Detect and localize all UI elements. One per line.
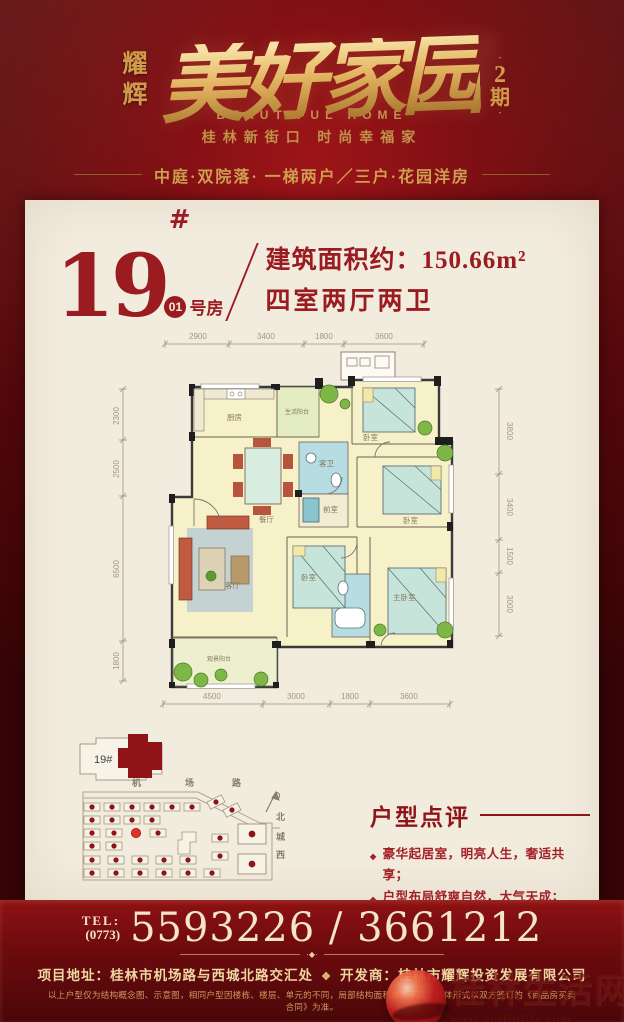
- tagline: 中庭·双院落· 一梯两户／三户·花园洋房: [0, 163, 624, 187]
- inset-label: 19#: [94, 754, 113, 766]
- phase-number: 2: [494, 63, 506, 87]
- dim-top-1: 2900: [189, 332, 207, 341]
- road-label-right-2: 城: [276, 831, 285, 842]
- dim-left-3: 6500: [112, 560, 121, 578]
- dim-right-2: 3400: [505, 498, 514, 516]
- room-bedroom-right: 卧室: [403, 515, 418, 525]
- phase-label: 期: [490, 87, 510, 109]
- road-label-top-2: 场: [185, 777, 194, 788]
- road-label-right-3: 西: [276, 850, 285, 860]
- room-guest-bath: 客卫: [319, 458, 334, 468]
- site-map: 19# 机 场 路: [70, 728, 370, 908]
- map-inset: 19#: [80, 734, 162, 780]
- watermark-site-url: www.guilinlife.com: [450, 1012, 624, 1022]
- road-label-top-1: 机: [132, 777, 141, 788]
- guest-bath-zone: [299, 442, 348, 494]
- poster-page: 耀辉 美好家园 · 2 期 · BEAUTIFUL HOME 桂林新街口 时尚幸…: [0, 0, 624, 1022]
- dim-right-3: 1500: [505, 547, 514, 565]
- room-service-balcony: 生活阳台: [285, 408, 309, 416]
- room-bedroom-mid: 卧室: [301, 572, 316, 582]
- map-buildings: [84, 795, 266, 877]
- dim-bottom-1: 4500: [203, 692, 221, 701]
- floor-plan: 厨房 生活阳台 卧室 客卫 前室 餐厅 卧室 客厅 卧室 主卧室 观景阳台: [95, 330, 531, 730]
- address-value: 桂林市机场路与西城北路交汇处: [110, 968, 313, 983]
- review-title-row: 户型点评: [370, 798, 590, 832]
- compass-icon: [266, 792, 280, 812]
- dim-bottom-4: 3600: [400, 692, 418, 701]
- review-point-text: 豪华起居室，明亮人生，奢适共享；: [383, 844, 590, 887]
- room-dining: 餐厅: [259, 515, 274, 524]
- room-view-balcony: 观景阳台: [207, 655, 231, 663]
- telephone-row: TEL: (0773) 5593226 / 3661212: [0, 908, 624, 948]
- address-label: 项目地址：: [38, 968, 111, 983]
- room-badge: 01: [164, 296, 186, 318]
- dim-left-2: 2500: [112, 460, 121, 478]
- room-number-block: 01 号房: [164, 294, 223, 319]
- tel-area-code: (0773): [82, 927, 120, 942]
- room-label: 号房: [189, 294, 223, 319]
- dim-left-4: 1800: [112, 652, 121, 670]
- watermark-sphere-logo-icon: [386, 970, 446, 1022]
- dim-bottom-3: 1800: [341, 692, 359, 701]
- watermark-text-block: 桂林生活网 www.guilinlife.com: [450, 975, 624, 1022]
- area-line: 建筑面积约：150.66m²: [265, 240, 526, 276]
- watermark-site-name: 桂林生活网: [450, 975, 624, 1009]
- dim-bottom-2: 3000: [287, 692, 305, 701]
- room-bedroom-top: 卧室: [363, 432, 378, 442]
- content-card: 19# 01 号房 建筑面积约：150.66m² 四室两厅两卫: [25, 200, 599, 900]
- unit-hash: #: [169, 205, 191, 235]
- dim-right-1: 3800: [505, 422, 514, 440]
- ornament-icon: ❖: [321, 971, 332, 983]
- brand-name: 耀辉: [114, 50, 150, 112]
- layout-line: 四室两厅两卫: [265, 281, 526, 317]
- site-watermark: 桂林生活网 www.guilinlife.com: [386, 970, 624, 1022]
- room-master-bedroom: 主卧室: [393, 592, 416, 602]
- dim-right-4: 3000: [505, 595, 514, 613]
- bullet-icon: ◆: [370, 850, 377, 887]
- divider-mark: ·◆·: [306, 950, 317, 959]
- phase-badge: · 2 期 ·: [490, 54, 510, 118]
- road-label-right-1: 北: [276, 811, 285, 822]
- dim-left-1: 2300: [112, 407, 121, 425]
- review-title-rule: [480, 814, 590, 816]
- unit-specs: 建筑面积约：150.66m² 四室两厅两卫: [265, 240, 526, 317]
- tel-label: TEL:: [82, 914, 120, 927]
- review-title: 户型点评: [370, 798, 470, 832]
- review-point: ◆ 豪华起居室，明亮人生，奢适共享；: [370, 844, 590, 887]
- header: 耀辉 美好家园 · 2 期 · BEAUTIFUL HOME 桂林新街口 时尚幸…: [0, 0, 624, 187]
- footer-divider: ·◆·: [0, 950, 624, 959]
- unit-headline: 19# 01 号房 建筑面积约：150.66m² 四室两厅两卫: [55, 240, 527, 321]
- dim-top-2: 3400: [257, 332, 275, 341]
- tel-numbers: 5593226 / 3661212: [130, 908, 542, 948]
- road-label-top-3: 路: [232, 777, 242, 788]
- highlighted-building-dot: [131, 828, 140, 837]
- stair-lobby: [341, 352, 395, 380]
- slash-divider: [226, 243, 260, 321]
- unit-number: 19: [55, 236, 167, 337]
- main-title-calligraphy: 美好家园: [159, 34, 482, 127]
- room-kitchen: 厨房: [227, 412, 242, 422]
- tel-label-block: TEL: (0773): [82, 914, 120, 942]
- room-living: 客厅: [225, 580, 240, 590]
- room-anteroom: 前室: [323, 504, 338, 514]
- dim-top-4: 3600: [375, 332, 393, 341]
- dim-top-3: 1800: [315, 332, 333, 341]
- phase-dot-bottom: ·: [498, 109, 501, 118]
